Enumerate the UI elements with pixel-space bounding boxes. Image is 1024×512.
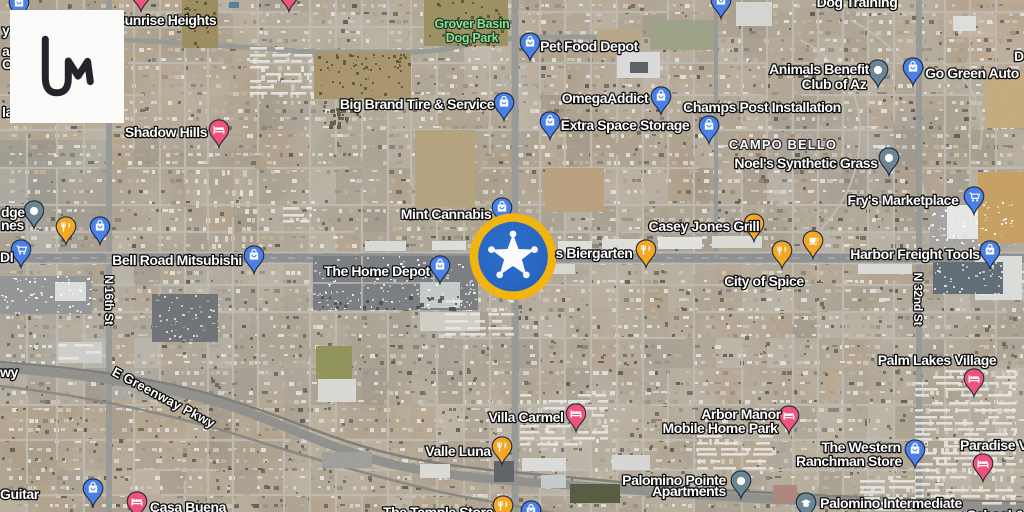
svg-text:Noel's Synthetic Grass: Noel's Synthetic Grass	[734, 155, 878, 171]
svg-text:Apartments: Apartments	[652, 483, 726, 499]
svg-text:DI: DI	[0, 249, 13, 265]
svg-text:City of Spice: City of Spice	[724, 273, 804, 289]
svg-text:Go Green Auto: Go Green Auto	[925, 65, 1019, 81]
svg-text:N 32nd St: N 32nd St	[911, 273, 925, 326]
svg-text:Club of Az: Club of Az	[802, 76, 867, 92]
svg-text:Animals Benefit: Animals Benefit	[769, 61, 870, 77]
svg-text:Sunrise Heights: Sunrise Heights	[116, 12, 217, 28]
svg-text:Bell Road Mitsubishi: Bell Road Mitsubishi	[112, 252, 242, 268]
svg-text:Pet Food Depot: Pet Food Depot	[540, 38, 639, 54]
svg-text:Fry's Marketplace: Fry's Marketplace	[848, 192, 960, 208]
svg-text:Mobile Home Park: Mobile Home Park	[663, 420, 779, 436]
svg-text:Valle Luna: Valle Luna	[425, 443, 491, 459]
svg-text:Palm Lakes Village: Palm Lakes Village	[878, 352, 997, 368]
svg-text:nes: nes	[1, 217, 25, 233]
svg-text:CAMPO BELLO: CAMPO BELLO	[729, 137, 837, 152]
svg-text:Harbor Freight Tools: Harbor Freight Tools	[850, 246, 980, 262]
svg-text:Guitar: Guitar	[0, 486, 40, 502]
svg-text:The Temple Store: The Temple Store	[383, 504, 494, 512]
svg-text:School & Stu: School & Stu	[967, 507, 1024, 512]
svg-text:Casa Buena: Casa Buena	[150, 499, 227, 512]
svg-text:Extra Space Storage: Extra Space Storage	[561, 117, 690, 133]
svg-text:s Biergarten: s Biergarten	[556, 245, 633, 261]
svg-text:Villa Carmel: Villa Carmel	[488, 409, 563, 425]
svg-text:wy: wy	[0, 364, 18, 380]
svg-text:y: y	[2, 22, 10, 38]
svg-text:Casey Jones Grill: Casey Jones Grill	[649, 218, 760, 234]
svg-text:Grover Basin: Grover Basin	[435, 17, 510, 31]
svg-text:Dog Training: Dog Training	[817, 0, 898, 10]
svg-text:Dog Park: Dog Park	[446, 31, 499, 45]
svg-text:Mint Cannabis: Mint Cannabis	[401, 206, 492, 222]
svg-text:Paradise Vi: Paradise Vi	[960, 437, 1024, 453]
svg-text:Shadow Hills: Shadow Hills	[125, 124, 208, 140]
svg-text:Ranchman Store: Ranchman Store	[796, 453, 902, 469]
svg-text:Champs Post Installation: Champs Post Installation	[683, 99, 841, 115]
svg-text:OmegaAddict: OmegaAddict	[562, 90, 649, 106]
svg-text:The Home Depot: The Home Depot	[324, 263, 430, 279]
svg-text:N 16th St: N 16th St	[102, 275, 116, 325]
svg-text:Palomino Intermediate: Palomino Intermediate	[820, 495, 962, 511]
svg-text:Dog: Dog	[1014, 48, 1024, 64]
svg-text:Big Brand Tire & Service: Big Brand Tire & Service	[340, 96, 495, 112]
